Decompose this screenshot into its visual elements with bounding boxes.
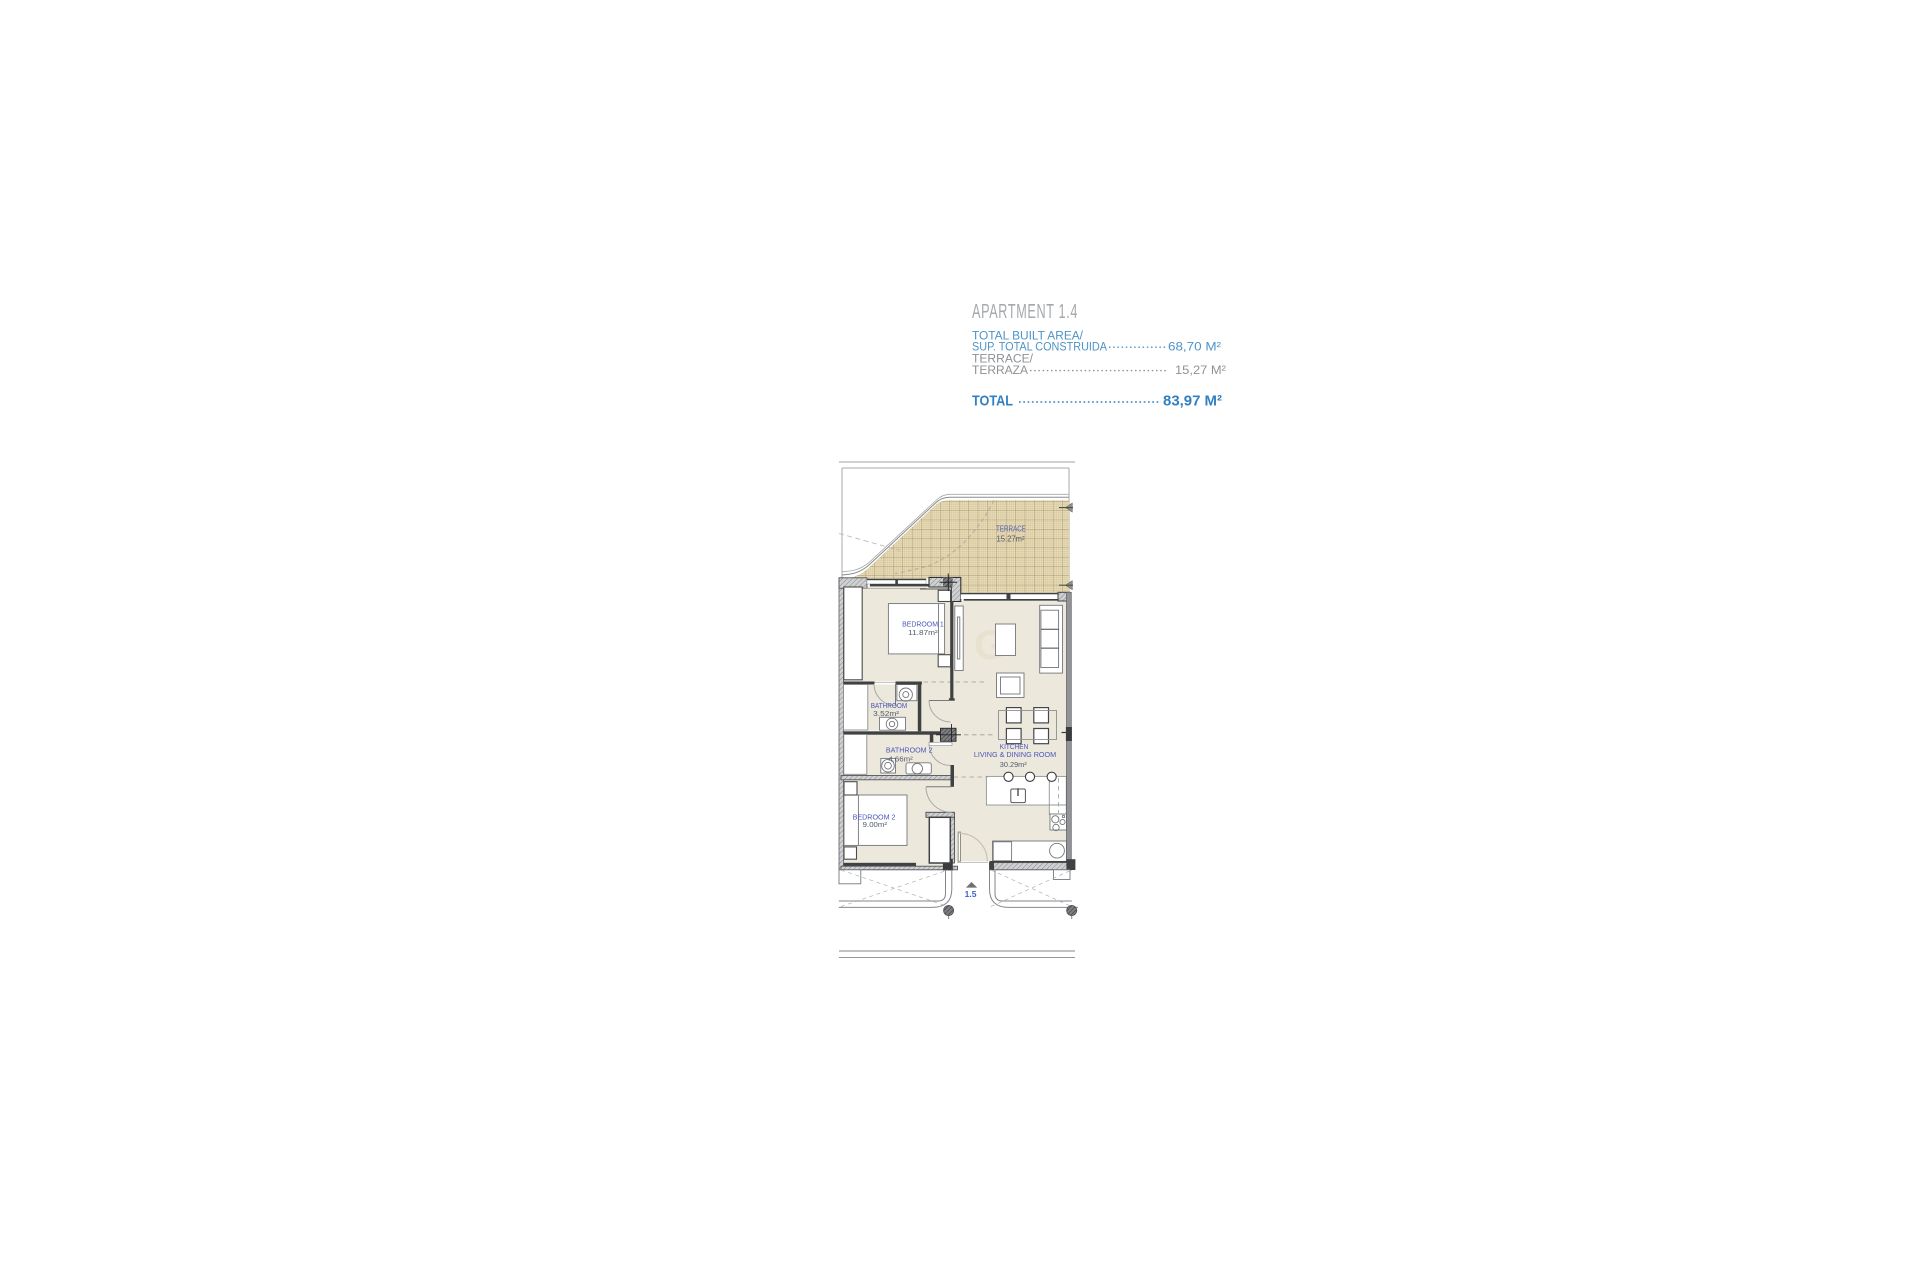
svg-text:3.52m²: 3.52m²	[873, 711, 900, 718]
svg-text:15,27 M²: 15,27 M²	[1175, 363, 1226, 377]
svg-text:4.66m²: 4.66m²	[888, 756, 913, 763]
svg-text:KITCHEN: KITCHEN	[1000, 744, 1029, 751]
svg-text:APARTMENT 1.4: APARTMENT 1.4	[972, 301, 1078, 323]
svg-text:TOTAL: TOTAL	[972, 393, 1013, 410]
svg-text:TERRAZA: TERRAZA	[972, 363, 1029, 377]
svg-text:30.29m²: 30.29m²	[1000, 762, 1028, 769]
svg-text:BATHROOM 2: BATHROOM 2	[886, 748, 933, 755]
svg-text:68,70 M²: 68,70 M²	[1168, 339, 1221, 353]
svg-text:BEDROOM 2: BEDROOM 2	[853, 814, 896, 821]
svg-text:15.27m²: 15.27m²	[997, 535, 1025, 544]
svg-text:11.87m²: 11.87m²	[908, 630, 938, 637]
svg-text:83,97 M²: 83,97 M²	[1163, 393, 1222, 410]
svg-text:TERRACE: TERRACE	[996, 524, 1026, 533]
svg-text:9.00m²: 9.00m²	[863, 822, 888, 829]
svg-text:1.5: 1.5	[965, 889, 977, 899]
svg-text:LIVING & DINING ROOM: LIVING & DINING ROOM	[974, 752, 1056, 759]
svg-text:BEDROOM 1: BEDROOM 1	[902, 622, 944, 629]
svg-text:BATHROOM: BATHROOM	[871, 703, 908, 710]
